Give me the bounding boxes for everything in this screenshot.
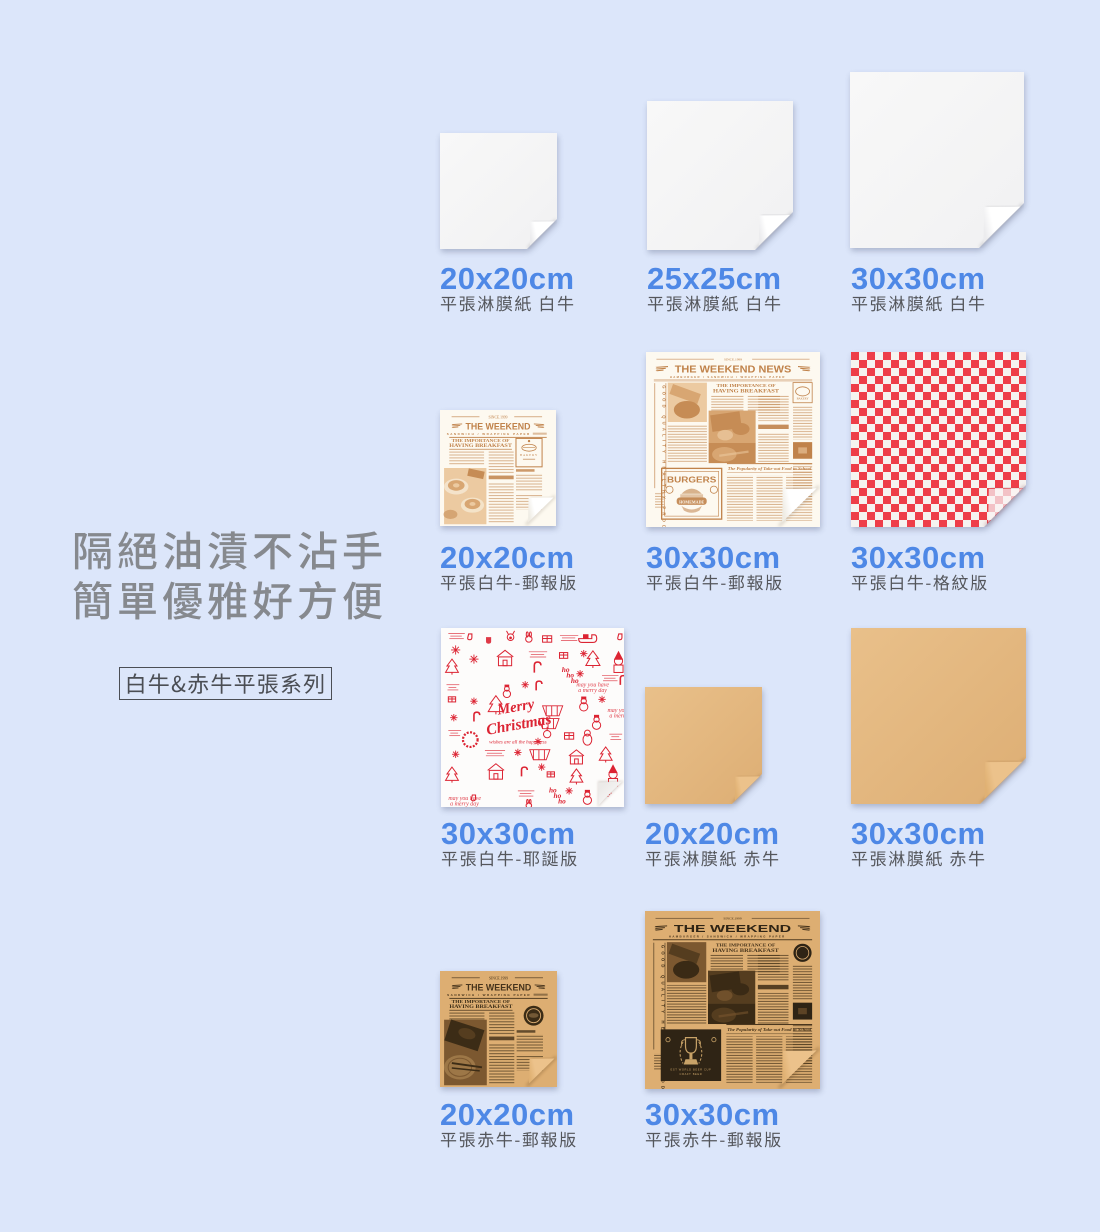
svg-text:wishes are all the happiness: wishes are all the happiness xyxy=(489,739,546,745)
svg-text:a merry day: a merry day xyxy=(578,688,607,694)
svg-text:HAMBURGER / SANDWICH / WRAPPIN: HAMBURGER / SANDWICH / WRAPPING PAPER xyxy=(669,935,786,939)
svg-text:THE WEEKEND: THE WEEKEND xyxy=(466,421,531,432)
svg-text:a merry day: a merry day xyxy=(609,714,624,720)
svg-text:ho: ho xyxy=(558,797,566,806)
svg-text:BAKERY: BAKERY xyxy=(797,397,810,401)
svg-text:HOMEMADE: HOMEMADE xyxy=(679,499,704,504)
svg-text:BAKERY: BAKERY xyxy=(520,453,538,457)
svg-text:SANDWICH / WRAPPING PAPER: SANDWICH / WRAPPING PAPER xyxy=(447,993,531,997)
svg-text:HAVING BREAKFAST: HAVING BREAKFAST xyxy=(712,948,779,954)
svg-text:The Popularity of Take-out Foo: The Popularity of Take-out Food in Schoo… xyxy=(728,466,812,471)
svg-text:SINCE.1999: SINCE.1999 xyxy=(723,917,741,921)
svg-text:SANDWICH / WRAPPING PAPER: SANDWICH / WRAPPING PAPER xyxy=(447,432,531,436)
svg-text:BURGERS: BURGERS xyxy=(667,476,716,485)
svg-text:THE WEEKEND: THE WEEKEND xyxy=(466,982,532,993)
svg-text:a merry day: a merry day xyxy=(450,802,479,807)
svg-text:THE IMPORTANCE OF: THE IMPORTANCE OF xyxy=(716,383,776,388)
svg-text:The Popularity of Take-out Foo: The Popularity of Take-out Food in Schoo… xyxy=(727,1027,812,1032)
svg-text:HAVING BREAKFAST: HAVING BREAKFAST xyxy=(713,388,780,394)
svg-text:THE WEEKEND: THE WEEKEND xyxy=(674,924,792,935)
svg-text:HAVING BREAKFAST: HAVING BREAKFAST xyxy=(449,1004,513,1010)
svg-text:EST WORLD BEER CUP: EST WORLD BEER CUP xyxy=(671,1068,712,1072)
svg-text:HAVING BREAKFAST: HAVING BREAKFAST xyxy=(449,443,512,449)
svg-text:HAMBURGER / SANDWICH / WRAPPIN: HAMBURGER / SANDWICH / WRAPPING PAPER xyxy=(670,375,786,379)
svg-text:SINCE.1999: SINCE.1999 xyxy=(724,357,742,361)
svg-text:THE IMPORTANCE OF: THE IMPORTANCE OF xyxy=(716,943,776,948)
svg-text:CRAFT BEER: CRAFT BEER xyxy=(680,1072,703,1076)
svg-text:SINCE.1999: SINCE.1999 xyxy=(489,977,508,981)
svg-text:SINCE.1999: SINCE.1999 xyxy=(488,416,507,420)
svg-text:THE WEEKEND NEWS: THE WEEKEND NEWS xyxy=(675,365,792,376)
